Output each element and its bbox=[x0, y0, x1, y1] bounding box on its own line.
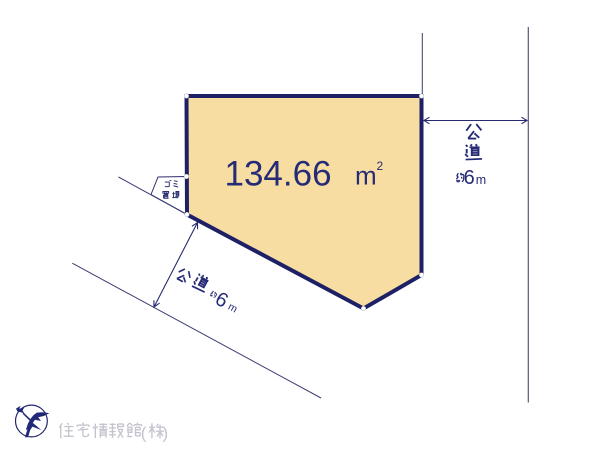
svg-text:(: ( bbox=[141, 424, 147, 443]
svg-text:m: m bbox=[476, 173, 486, 187]
svg-text:): ) bbox=[163, 424, 169, 443]
svg-text:m: m bbox=[355, 161, 377, 191]
svg-text:6: 6 bbox=[464, 167, 475, 189]
svg-text:m: m bbox=[226, 301, 240, 316]
svg-text:2: 2 bbox=[377, 159, 384, 173]
svg-text:134.66: 134.66 bbox=[225, 155, 332, 194]
